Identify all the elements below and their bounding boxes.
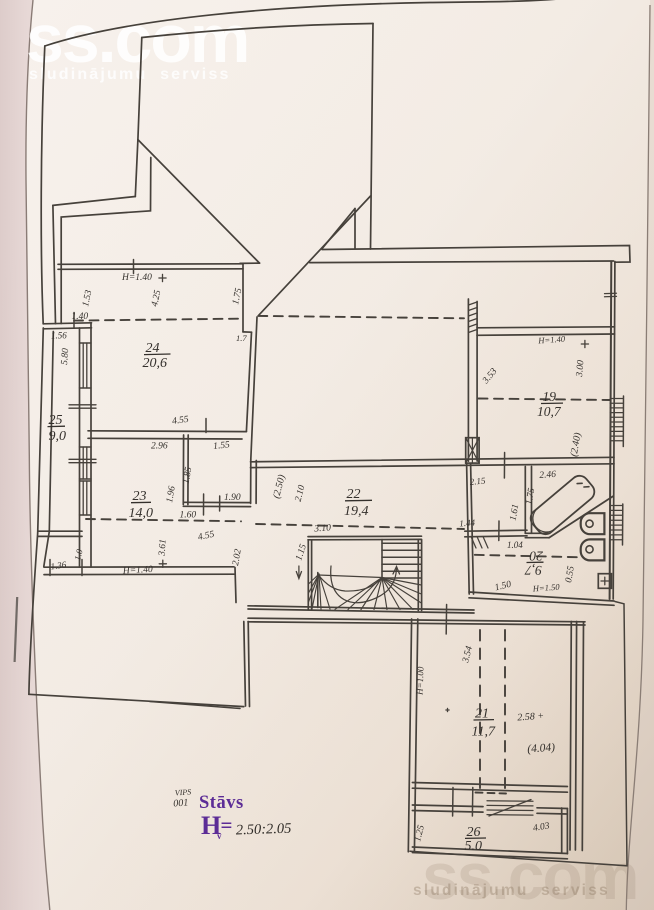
svg-text:VIPS: VIPS xyxy=(175,787,192,797)
svg-text:H=1.00: H=1.00 xyxy=(414,666,425,696)
svg-text:1.7: 1.7 xyxy=(236,333,247,343)
svg-text:H=1.40: H=1.40 xyxy=(122,565,154,577)
svg-text:9,7: 9,7 xyxy=(524,563,542,578)
svg-text:ss.com: ss.com xyxy=(422,839,637,910)
svg-text:9,0: 9,0 xyxy=(49,429,67,444)
svg-text:19: 19 xyxy=(543,389,557,404)
svg-text:5.0: 5.0 xyxy=(465,839,483,854)
svg-text:1.60: 1.60 xyxy=(180,511,197,521)
svg-text:22: 22 xyxy=(347,487,361,502)
svg-text:1.44: 1.44 xyxy=(459,517,476,528)
svg-text:20,6: 20,6 xyxy=(143,356,168,371)
svg-text:3.10: 3.10 xyxy=(313,523,332,534)
svg-text:1.40: 1.40 xyxy=(72,312,89,322)
svg-text:5.80: 5.80 xyxy=(60,348,71,366)
svg-text:10,7: 10,7 xyxy=(537,404,562,419)
svg-text:Stāvs: Stāvs xyxy=(199,793,244,813)
svg-text:1.56: 1.56 xyxy=(51,331,67,341)
svg-text:19,4: 19,4 xyxy=(344,504,369,519)
svg-text:sludinājumu serviss: sludinājumu serviss xyxy=(29,66,231,83)
svg-text:1.55: 1.55 xyxy=(213,440,231,452)
svg-text:2.58 +: 2.58 + xyxy=(517,711,544,724)
svg-text:14,0: 14,0 xyxy=(129,506,154,521)
svg-text:H=1.50: H=1.50 xyxy=(531,582,560,594)
svg-text:3.00: 3.00 xyxy=(575,360,587,379)
svg-text:2.15: 2.15 xyxy=(469,475,486,487)
svg-text:H=1.40: H=1.40 xyxy=(537,334,566,346)
svg-text:1.04: 1.04 xyxy=(507,540,523,550)
svg-text:(4.04): (4.04) xyxy=(527,742,556,756)
svg-text:3.61: 3.61 xyxy=(157,539,168,557)
svg-text:11,7: 11,7 xyxy=(472,725,496,740)
svg-text:2.46: 2.46 xyxy=(539,470,557,481)
svg-text:sludinājumu serviss: sludinājumu serviss xyxy=(413,882,610,899)
svg-text:2.50:2.05: 2.50:2.05 xyxy=(236,821,292,839)
svg-text:1.90: 1.90 xyxy=(224,493,241,503)
svg-text:001: 001 xyxy=(173,797,189,809)
svg-text:H=1.40: H=1.40 xyxy=(121,273,152,283)
svg-text:2.96: 2.96 xyxy=(151,442,168,452)
svg-text:20: 20 xyxy=(529,549,543,564)
svg-text:23: 23 xyxy=(133,489,147,504)
svg-text:=: = xyxy=(221,813,233,837)
